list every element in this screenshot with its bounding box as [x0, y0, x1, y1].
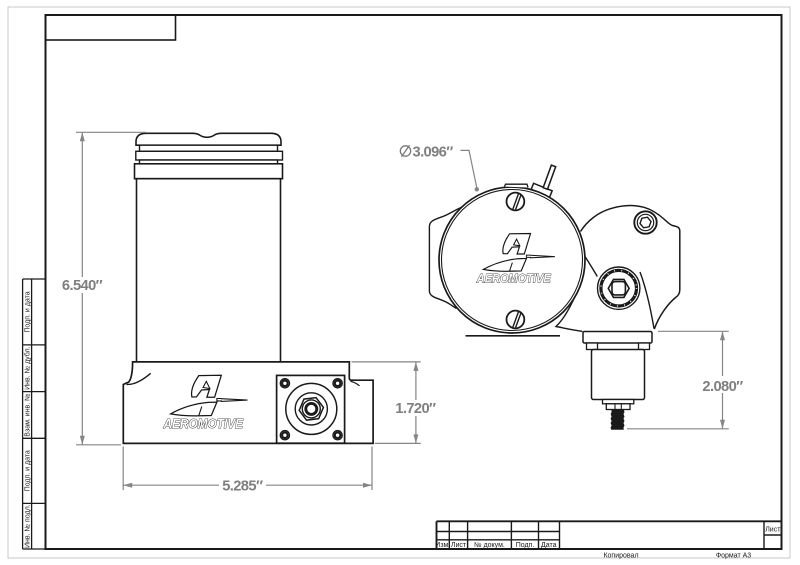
svg-text:2.080″: 2.080″	[702, 379, 743, 395]
svg-text:Подп.: Подп.	[516, 542, 535, 549]
svg-text:Дата: Дата	[541, 542, 557, 549]
svg-text:Инв. № подл.: Инв. № подл.	[25, 504, 32, 548]
svg-text:6.540″: 6.540″	[62, 278, 103, 294]
svg-text:3.096″: 3.096″	[413, 145, 454, 161]
svg-text:Подп. и дата: Подп. и дата	[25, 450, 32, 491]
svg-text:№ докум.: № докум.	[474, 542, 505, 549]
svg-text:Лист: Лист	[451, 542, 467, 549]
svg-text:1.720″: 1.720″	[395, 401, 436, 417]
svg-text:Лист: Лист	[765, 527, 781, 534]
svg-text:Инв. № дубл.: Инв. № дубл.	[24, 346, 32, 389]
svg-text:Подп. и дата: Подп. и дата	[25, 291, 32, 332]
svg-text:Изм.: Изм.	[435, 542, 450, 549]
svg-text:Взам. инв. №: Взам. инв. №	[25, 393, 32, 436]
svg-text:Формат А3: Формат А3	[716, 553, 751, 560]
svg-text:5.285″: 5.285″	[222, 478, 263, 494]
svg-text:Копировал: Копировал	[603, 553, 638, 560]
